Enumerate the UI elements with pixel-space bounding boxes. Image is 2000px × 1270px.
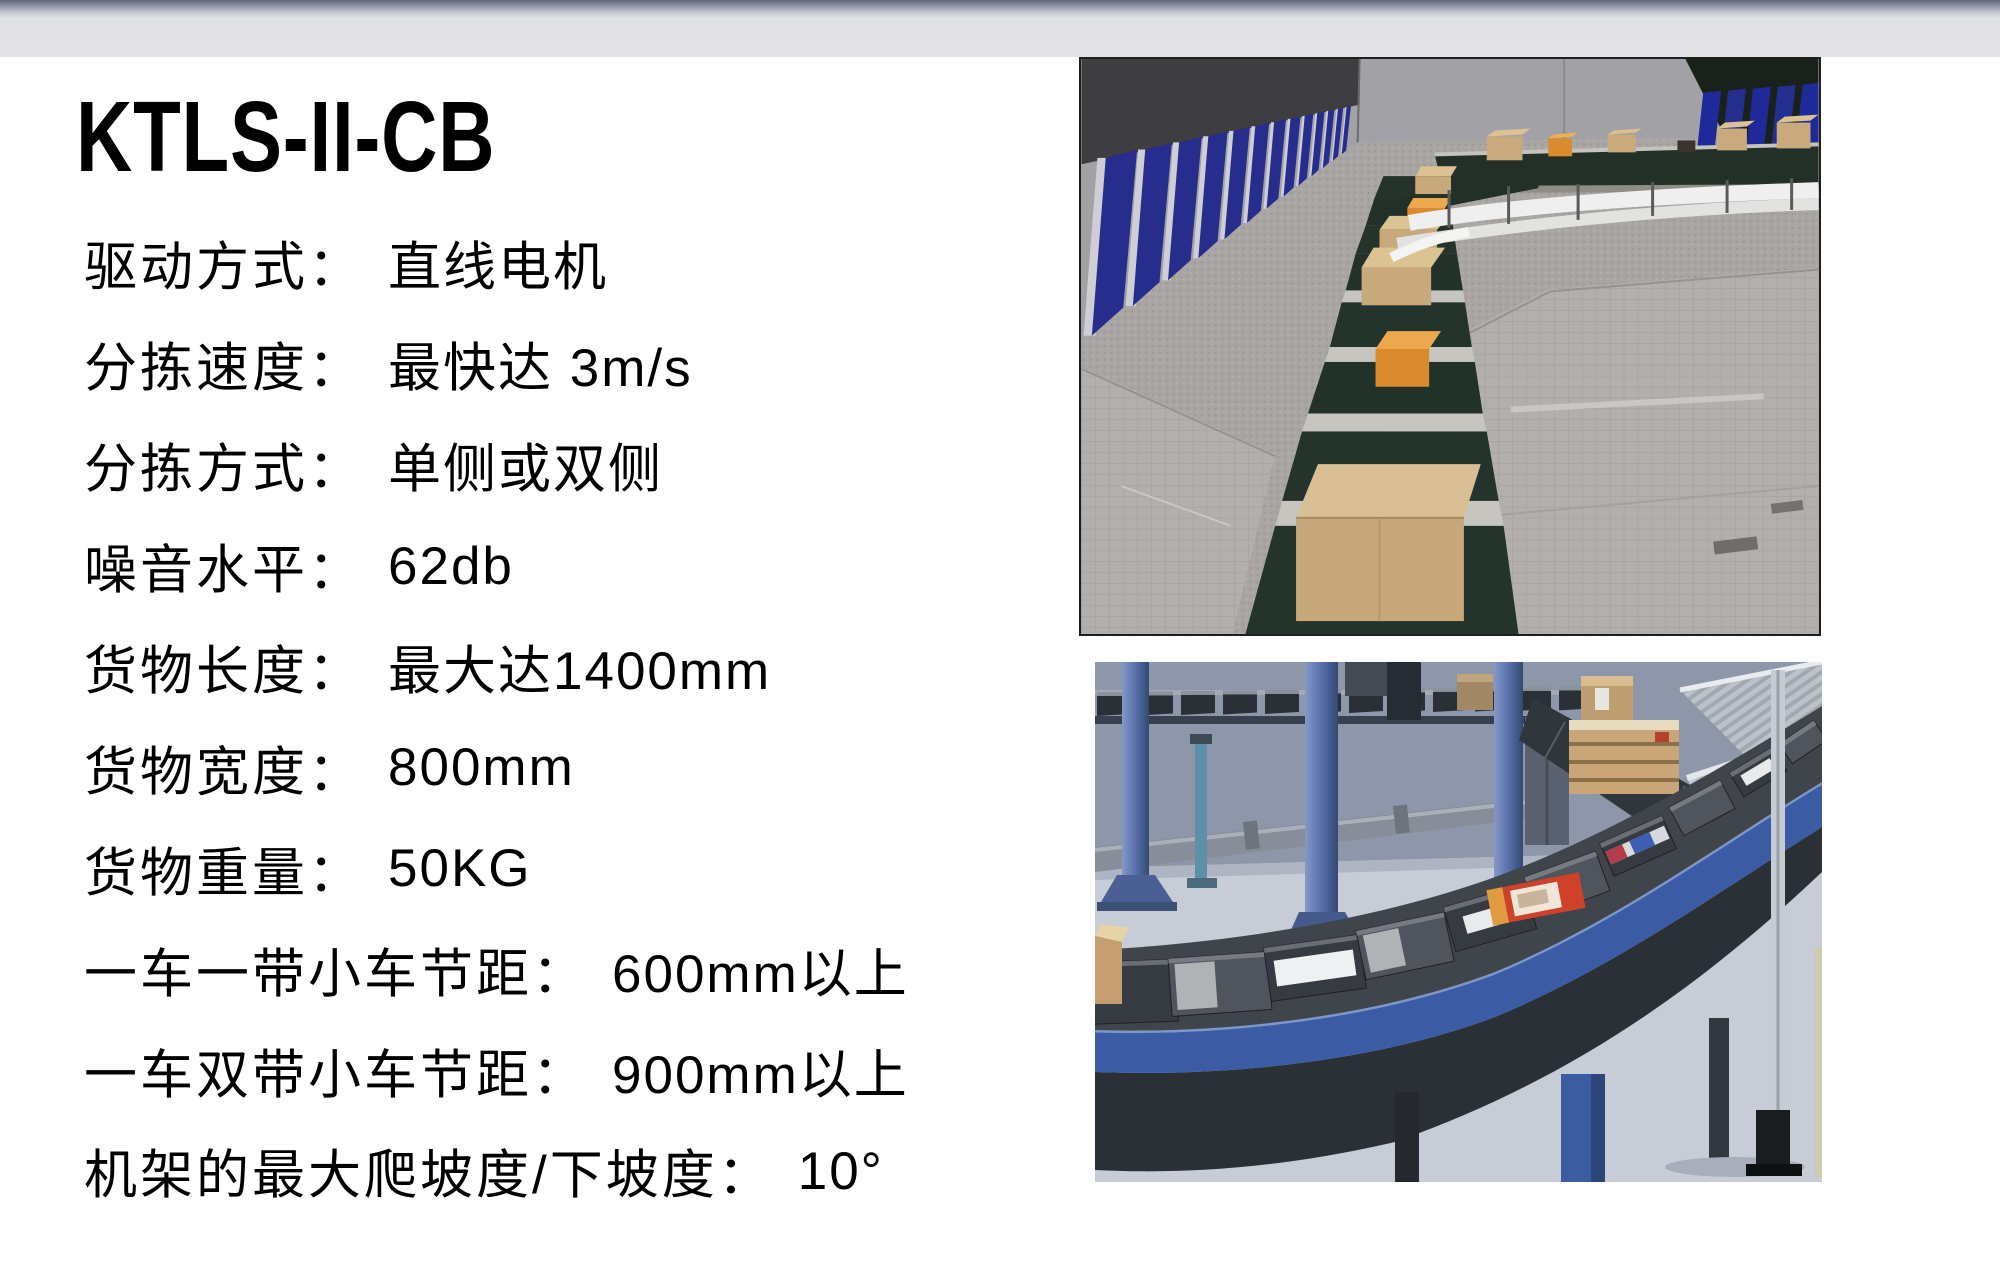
spec-line: 货物宽度：800mm [84, 717, 909, 818]
spec-value: 最快达 3m/s [388, 326, 693, 402]
spec-value: 600mm以上 [612, 932, 909, 1008]
spec-value: 10° [798, 1141, 884, 1202]
spec-label: 分拣速度： [84, 326, 364, 402]
spec-value: 62db [388, 536, 514, 597]
spec-value: 50KG [388, 838, 532, 899]
spec-line: 机架的最大爬坡度/下坡度：10° [84, 1121, 909, 1222]
spec-value: 直线电机 [388, 225, 608, 301]
crossbelt-sorter-render [1081, 59, 1819, 634]
spec-label: 噪音水平： [84, 528, 364, 604]
spec-line: 一车一带小车节距：600mm以上 [84, 919, 909, 1020]
spec-line: 噪音水平：62db [84, 516, 909, 617]
spec-label: 一车一带小车节距： [84, 932, 588, 1008]
spec-line: 分拣速度：最快达 3m/s [84, 314, 909, 415]
page-title: KTLS-II-CB [76, 92, 495, 182]
crossbelt-sorter-image [1079, 57, 1821, 636]
curve-conveyor-render [1095, 662, 1822, 1182]
spec-line: 一车双带小车节距：900mm以上 [84, 1020, 909, 1121]
spec-label: 货物宽度： [84, 730, 364, 806]
spec-line: 货物重量：50KG [84, 818, 909, 919]
spec-line: 驱动方式：直线电机 [84, 213, 909, 314]
spec-value: 900mm以上 [612, 1033, 909, 1109]
top-gradient-bar [0, 0, 2000, 57]
spec-line: 分拣方式：单侧或双侧 [84, 415, 909, 516]
slide-page: { "slide": { "header_bar": { "gradient_t… [0, 0, 2000, 1270]
spec-line: 货物长度：最大达1400mm [84, 617, 909, 718]
spec-label: 机架的最大爬坡度/下坡度： [84, 1133, 774, 1209]
spec-list: 驱动方式：直线电机 分拣速度：最快达 3m/s 分拣方式：单侧或双侧 噪音水平：… [84, 213, 909, 1222]
spec-label: 货物长度： [84, 629, 364, 705]
spec-value: 单侧或双侧 [388, 427, 663, 503]
spec-label: 驱动方式： [84, 225, 364, 301]
curve-conveyor-image [1095, 662, 1822, 1182]
spec-label: 一车双带小车节距： [84, 1033, 588, 1109]
spec-value: 800mm [388, 737, 575, 798]
spec-value: 最大达1400mm [388, 629, 771, 705]
spec-label: 分拣方式： [84, 427, 364, 503]
spec-label: 货物重量： [84, 831, 364, 907]
